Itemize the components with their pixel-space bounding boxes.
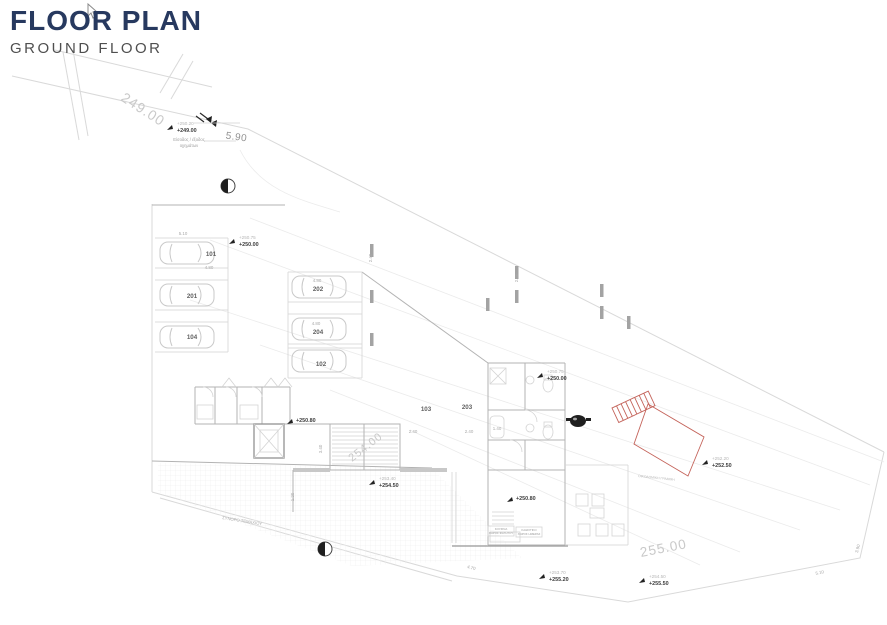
kitchen-label: ΚΟΥΖΙΝΑ ΧΩΡΟΣ ΦΑΓΗΤΟΥ xyxy=(488,526,514,536)
svg-text:Είσοδος / έξοδος: Είσοδος / έξοδος xyxy=(173,137,204,142)
svg-text:+250.75: +250.75 xyxy=(547,369,564,374)
svg-text:+255.50: +255.50 xyxy=(649,581,669,587)
spot-level: +253.70 +255.20 xyxy=(539,570,569,583)
unit-number-203: 203 xyxy=(462,404,473,411)
page-title: FLOOR PLAN xyxy=(10,6,202,37)
spot-level-single: +250.80 xyxy=(287,418,316,424)
spot-level: +250.20 +249.00 xyxy=(167,121,197,134)
drawing-header: FLOOR PLAN GROUND FLOOR xyxy=(10,6,202,57)
red-exterior-stair xyxy=(612,391,704,476)
spot-level: +254.50 +255.50 xyxy=(639,574,669,587)
svg-text:2.40: 2.40 xyxy=(368,253,373,262)
svg-text:+254.50: +254.50 xyxy=(649,574,666,579)
svg-text:2.40: 2.40 xyxy=(409,429,418,434)
svg-text:5.10: 5.10 xyxy=(179,231,188,236)
unit-number-204: 204 xyxy=(313,329,324,336)
svg-text:4.70: 4.70 xyxy=(467,564,477,571)
unit-number-101: 101 xyxy=(206,251,217,258)
svg-text:2.40: 2.40 xyxy=(514,273,519,282)
svg-text:+250.80: +250.80 xyxy=(516,496,536,502)
svg-text:+250.20: +250.20 xyxy=(177,121,194,126)
unit-number-104: 104 xyxy=(187,334,198,341)
svg-text:οχημάτων: οχημάτων xyxy=(180,143,199,148)
spot-level: +250.75 +250.00 xyxy=(229,235,259,248)
unit-number-202: 202 xyxy=(313,286,324,293)
svg-text:+249.00: +249.00 xyxy=(177,128,197,134)
svg-text:+252.50: +252.50 xyxy=(712,463,732,469)
svg-text:+255.20: +255.20 xyxy=(549,577,569,583)
terrace-furniture xyxy=(565,465,628,545)
unit-number-103: 103 xyxy=(421,406,432,413)
svg-text:+254.50: +254.50 xyxy=(379,483,399,489)
svg-text:4.80: 4.80 xyxy=(205,265,214,270)
svg-text:1.40: 1.40 xyxy=(493,426,502,431)
svg-text:4.80: 4.80 xyxy=(313,278,322,283)
hatched-ground-area xyxy=(158,463,522,566)
section-marker-icon xyxy=(221,179,235,193)
road-width-dimension: 5.90 xyxy=(225,131,248,145)
unit-number-201: 201 xyxy=(187,293,198,300)
svg-text:+250.80: +250.80 xyxy=(296,418,316,424)
svg-text:+253.70: +253.70 xyxy=(549,570,566,575)
svg-text:4.80: 4.80 xyxy=(312,321,321,326)
svg-text:+253.40: +253.40 xyxy=(379,476,396,481)
elevator-shaft xyxy=(254,424,284,458)
svg-text:5.10: 5.10 xyxy=(815,569,825,576)
parked-cars xyxy=(160,242,346,372)
page-subtitle: GROUND FLOOR xyxy=(10,40,202,57)
living-label: ΚΑΘΙΣΤΙΚΟ ΧΩΡΟΣ ΗΜΕΡΑΣ xyxy=(516,527,542,537)
svg-text:3.40: 3.40 xyxy=(318,444,323,453)
section-marker-icon xyxy=(318,542,332,556)
svg-text:+250.75: +250.75 xyxy=(239,235,256,240)
svg-text:+250.00: +250.00 xyxy=(239,242,259,248)
structural-piers xyxy=(370,244,631,346)
svg-text:ΧΩΡΟΣ ΦΑΓΗΤΟΥ: ΧΩΡΟΣ ΦΑΓΗΤΟΥ xyxy=(489,531,514,535)
floor-plan-drawing: 249.00 254.00 255.00 5.90 +250.20 +249.0… xyxy=(0,0,887,625)
spot-level: +250.75 +250.00 xyxy=(537,369,567,382)
svg-text:1.20: 1.20 xyxy=(290,492,295,501)
bbq-grill-icon xyxy=(566,415,591,427)
svg-text:ΧΩΡΟΣ ΗΜΕΡΑΣ: ΧΩΡΟΣ ΗΜΕΡΑΣ xyxy=(518,532,541,536)
unit-number-102: 102 xyxy=(316,361,327,368)
svg-text:+250.00: +250.00 xyxy=(547,376,567,382)
floor-plan-page: FLOOR PLAN GROUND FLOOR xyxy=(0,0,887,625)
svg-text:3.90: 3.90 xyxy=(854,543,861,553)
svg-text:2.40: 2.40 xyxy=(465,429,474,434)
svg-text:+252.20: +252.20 xyxy=(712,456,729,461)
spot-level-single: +250.80 xyxy=(507,496,536,502)
contour-label-254: 254.00 xyxy=(346,430,385,464)
vehicle-access-label: Είσοδος / έξοδος οχημάτων xyxy=(173,137,204,148)
